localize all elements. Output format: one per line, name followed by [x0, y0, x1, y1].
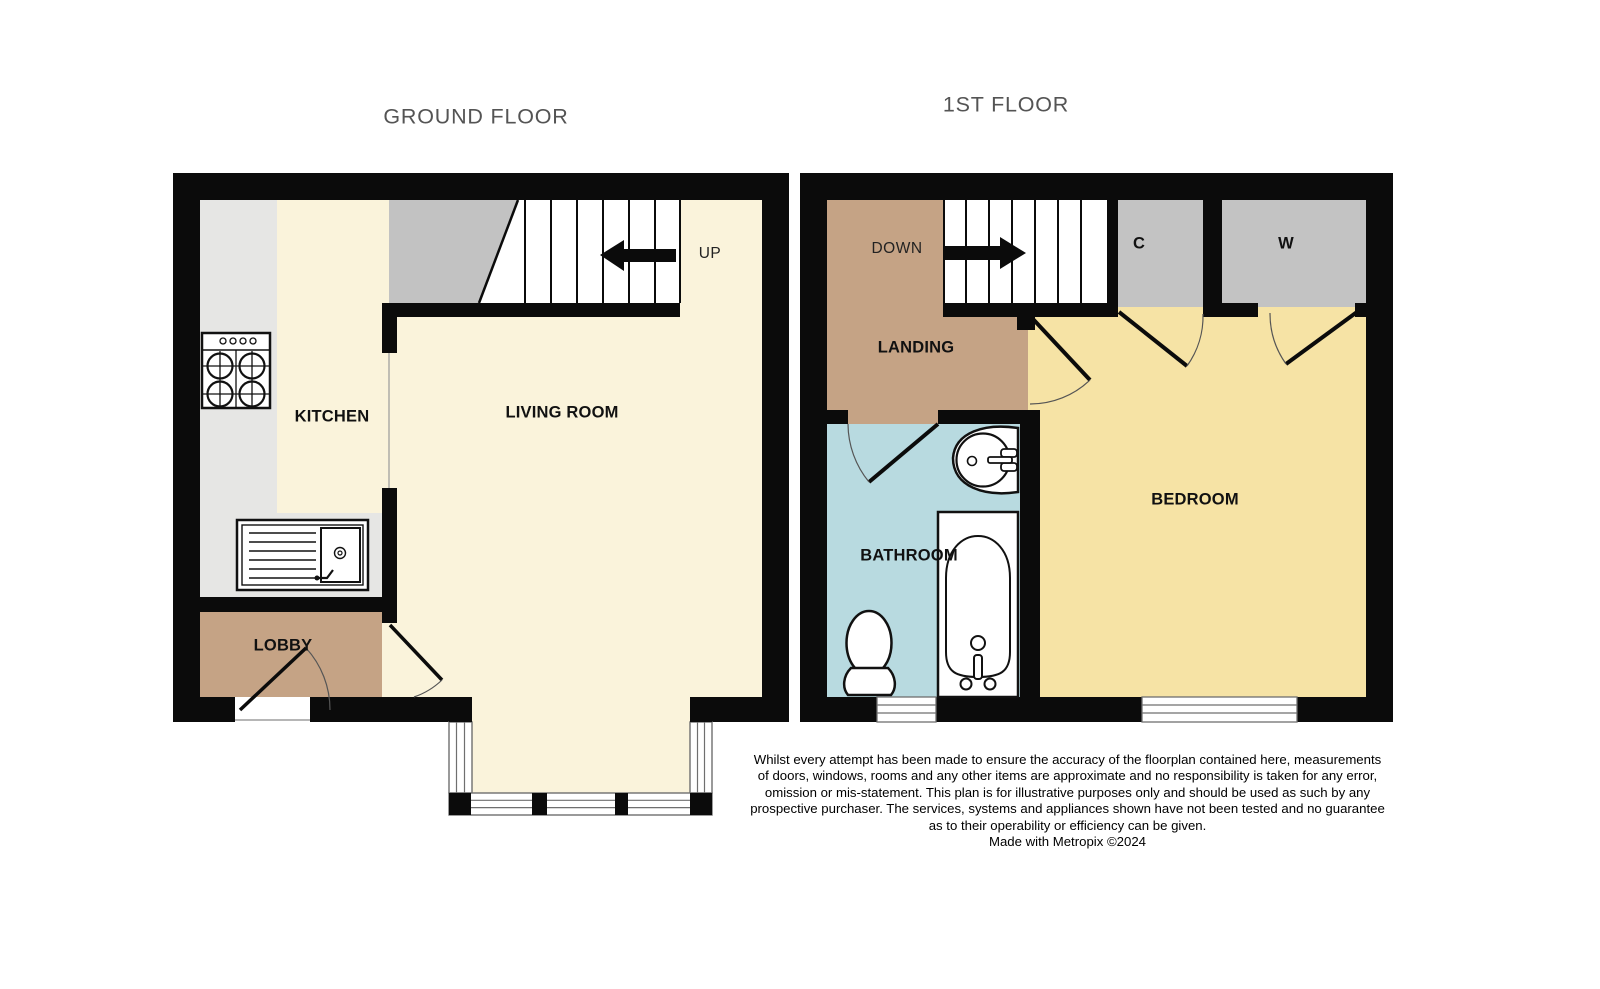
floorplan-canvas: GROUND FLOOR 1ST FLOOR: [0, 0, 1600, 989]
wall: [173, 697, 235, 722]
wall: [173, 173, 789, 200]
wall: [762, 173, 789, 722]
wall: [173, 173, 200, 722]
wall: [310, 697, 449, 722]
ground-floor-title: GROUND FLOOR: [383, 105, 568, 130]
wall-stub: [1222, 303, 1258, 317]
closet-divider-wall: [1203, 200, 1222, 317]
stairs-side-wall: [1107, 200, 1118, 317]
door-jamb: [1017, 303, 1035, 330]
bay-window-floor: [472, 697, 690, 793]
first-floor-title: 1ST FLOOR: [943, 93, 1069, 118]
wall-stub: [1355, 303, 1366, 317]
lobby-label: LOBBY: [254, 637, 313, 656]
door-jamb: [827, 410, 848, 424]
cupboard-floor: [1118, 200, 1203, 307]
landing-label: LANDING: [878, 339, 955, 358]
up-label: UP: [699, 245, 722, 263]
wall: [1366, 173, 1393, 722]
down-label: DOWN: [871, 240, 922, 258]
wall-under-stairs: [382, 303, 680, 317]
wall: [712, 697, 789, 722]
first-stairs-floor: [943, 200, 1107, 303]
ground-stairs-floor: [477, 200, 680, 303]
bedroom-window: [1142, 697, 1297, 722]
kitchen-counter-sink-area: [200, 513, 382, 597]
wardrobe-floor: [1222, 200, 1366, 307]
kitchen-counter-strip: [200, 200, 277, 513]
wall: [800, 697, 877, 722]
wall: [936, 697, 1142, 722]
bathroom-bedroom-wall: [1020, 410, 1040, 697]
credit-text: Made with Metropix ©2024: [700, 834, 1435, 850]
wardrobe-label: W: [1278, 235, 1294, 254]
living-room-label: LIVING ROOM: [505, 404, 618, 423]
wall-stub: [382, 303, 397, 353]
wall: [1297, 697, 1393, 722]
kitchen-label: KITCHEN: [295, 408, 370, 427]
bathroom-window: [877, 697, 936, 722]
wall: [800, 173, 827, 722]
disclaimer-text: Whilst every attempt has been made to en…: [700, 752, 1435, 834]
footer: Whilst every attempt has been made to en…: [700, 752, 1435, 850]
lobby-wall: [200, 597, 397, 612]
cupboard-label: C: [1133, 235, 1145, 254]
bedroom-label: BEDROOM: [1151, 491, 1239, 510]
bathroom-label: BATHROOM: [860, 547, 958, 566]
wall: [800, 173, 1393, 200]
